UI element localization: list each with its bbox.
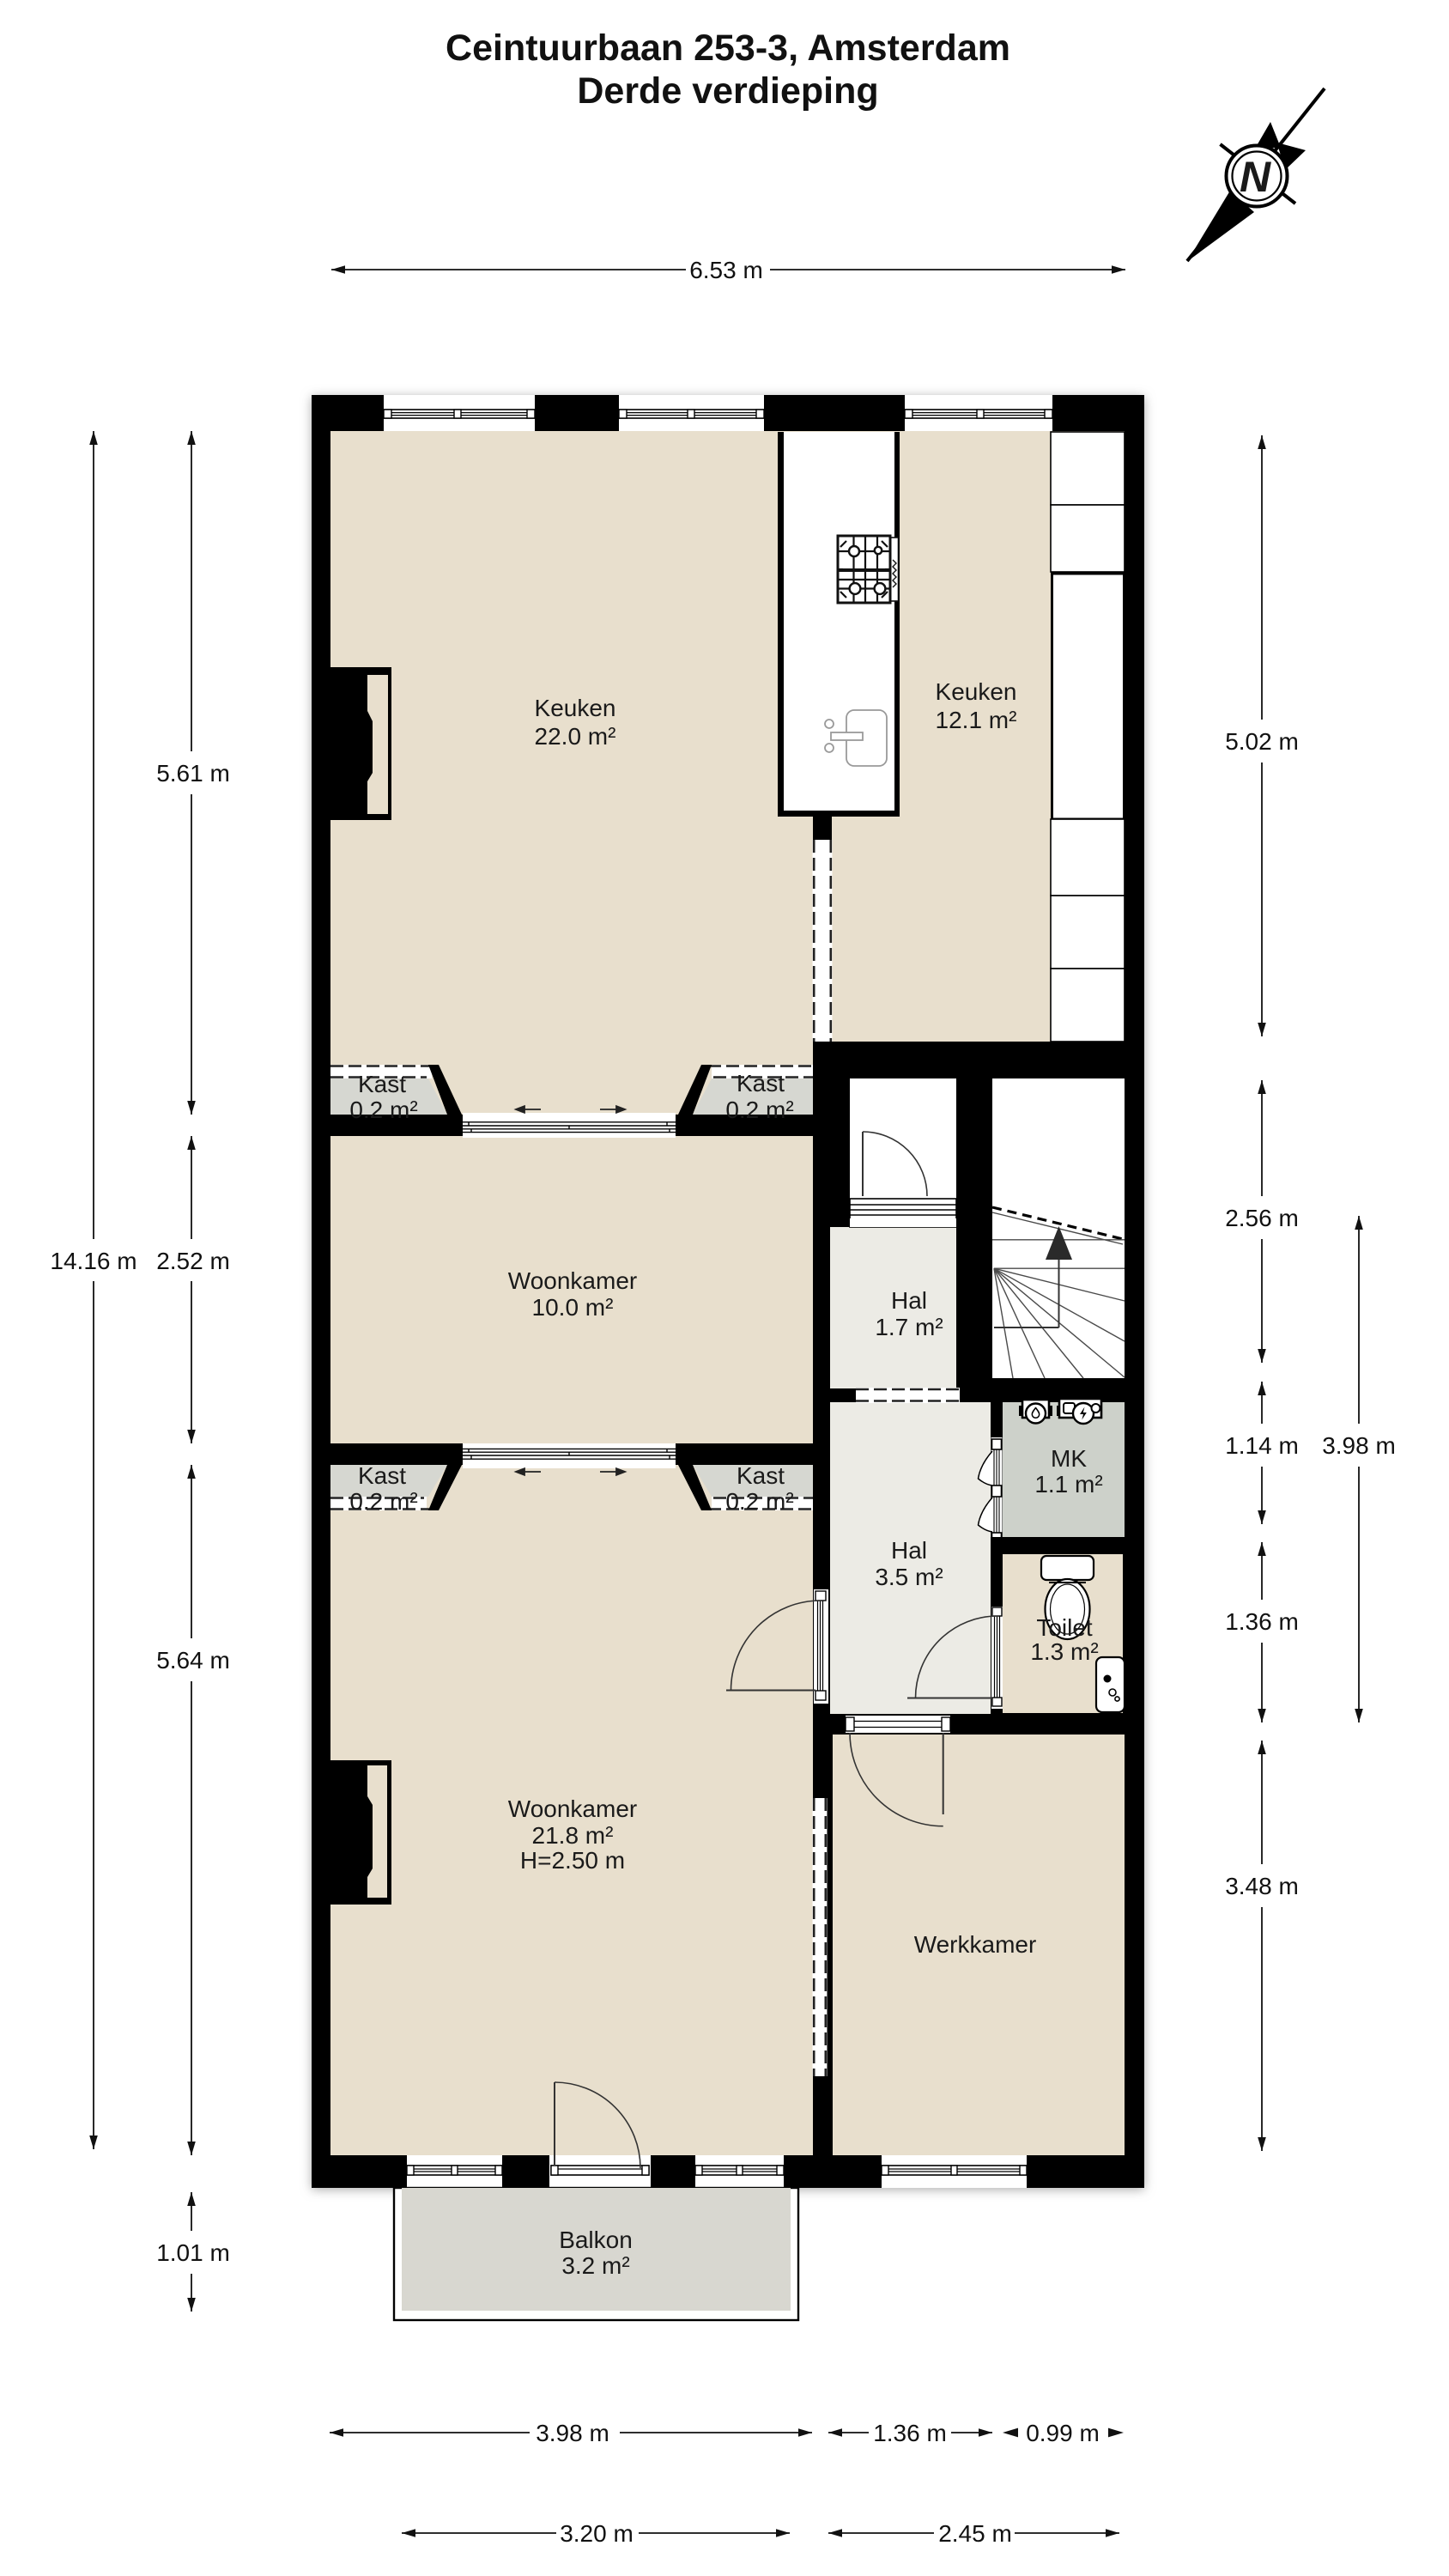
svg-text:2.56 m: 2.56 m bbox=[1225, 1205, 1299, 1231]
svg-text:1.36 m: 1.36 m bbox=[1225, 1608, 1299, 1635]
svg-text:3.5 m²: 3.5 m² bbox=[875, 1564, 943, 1590]
svg-text:Keuken: Keuken bbox=[936, 678, 1017, 705]
svg-text:H=2.50 m: H=2.50 m bbox=[520, 1847, 625, 1874]
svg-text:0.2 m²: 0.2 m² bbox=[725, 1488, 793, 1515]
svg-text:Kast: Kast bbox=[737, 1462, 785, 1489]
svg-text:1.01 m: 1.01 m bbox=[156, 2239, 230, 2266]
svg-text:Derde verdieping: Derde verdieping bbox=[577, 70, 878, 112]
svg-text:0.99 m: 0.99 m bbox=[1026, 2420, 1100, 2446]
svg-text:Kast: Kast bbox=[358, 1071, 406, 1097]
svg-text:Keuken: Keuken bbox=[535, 695, 616, 721]
svg-text:Kast: Kast bbox=[358, 1462, 406, 1489]
svg-text:Kast: Kast bbox=[737, 1070, 785, 1097]
svg-text:21.8 m²: 21.8 m² bbox=[532, 1822, 614, 1849]
svg-text:0.2 m²: 0.2 m² bbox=[349, 1097, 417, 1123]
svg-text:Balkon: Balkon bbox=[559, 2227, 633, 2253]
svg-text:1.3 m²: 1.3 m² bbox=[1030, 1638, 1098, 1665]
svg-text:3.98 m: 3.98 m bbox=[536, 2420, 609, 2446]
svg-text:Woonkamer: Woonkamer bbox=[508, 1795, 637, 1822]
svg-text:5.61 m: 5.61 m bbox=[156, 760, 230, 787]
svg-text:Woonkamer: Woonkamer bbox=[508, 1267, 637, 1294]
svg-text:1.14 m: 1.14 m bbox=[1225, 1432, 1299, 1459]
svg-text:N: N bbox=[1240, 153, 1271, 201]
svg-text:22.0 m²: 22.0 m² bbox=[535, 723, 616, 750]
svg-text:Hal: Hal bbox=[891, 1537, 927, 1564]
svg-text:12.1 m²: 12.1 m² bbox=[936, 707, 1017, 733]
svg-text:Ceintuurbaan 253-3, Amsterdam: Ceintuurbaan 253-3, Amsterdam bbox=[446, 27, 1010, 69]
svg-text:10.0 m²: 10.0 m² bbox=[532, 1294, 614, 1321]
svg-text:3.2 m²: 3.2 m² bbox=[561, 2252, 629, 2279]
svg-text:0.2 m²: 0.2 m² bbox=[349, 1488, 417, 1515]
svg-text:1.1 m²: 1.1 m² bbox=[1034, 1471, 1102, 1498]
svg-text:6.53 m: 6.53 m bbox=[689, 257, 763, 283]
svg-text:0.2 m²: 0.2 m² bbox=[725, 1097, 793, 1123]
svg-text:MK: MK bbox=[1051, 1445, 1087, 1472]
svg-text:5.02 m: 5.02 m bbox=[1225, 728, 1299, 755]
svg-text:5.64 m: 5.64 m bbox=[156, 1647, 230, 1674]
svg-text:1.36 m: 1.36 m bbox=[873, 2420, 947, 2446]
svg-text:3.20 m: 3.20 m bbox=[560, 2520, 634, 2547]
svg-text:Hal: Hal bbox=[891, 1287, 927, 1314]
svg-text:1.7 m²: 1.7 m² bbox=[875, 1314, 943, 1340]
svg-text:3.98 m: 3.98 m bbox=[1322, 1432, 1396, 1459]
svg-text:2.52 m: 2.52 m bbox=[156, 1248, 230, 1274]
svg-text:Toilet: Toilet bbox=[1036, 1614, 1093, 1641]
svg-text:3.48 m: 3.48 m bbox=[1225, 1873, 1299, 1899]
svg-text:14.16 m: 14.16 m bbox=[50, 1248, 136, 1274]
svg-text:2.45 m: 2.45 m bbox=[938, 2520, 1012, 2547]
svg-text:Werkkamer: Werkkamer bbox=[914, 1931, 1037, 1958]
